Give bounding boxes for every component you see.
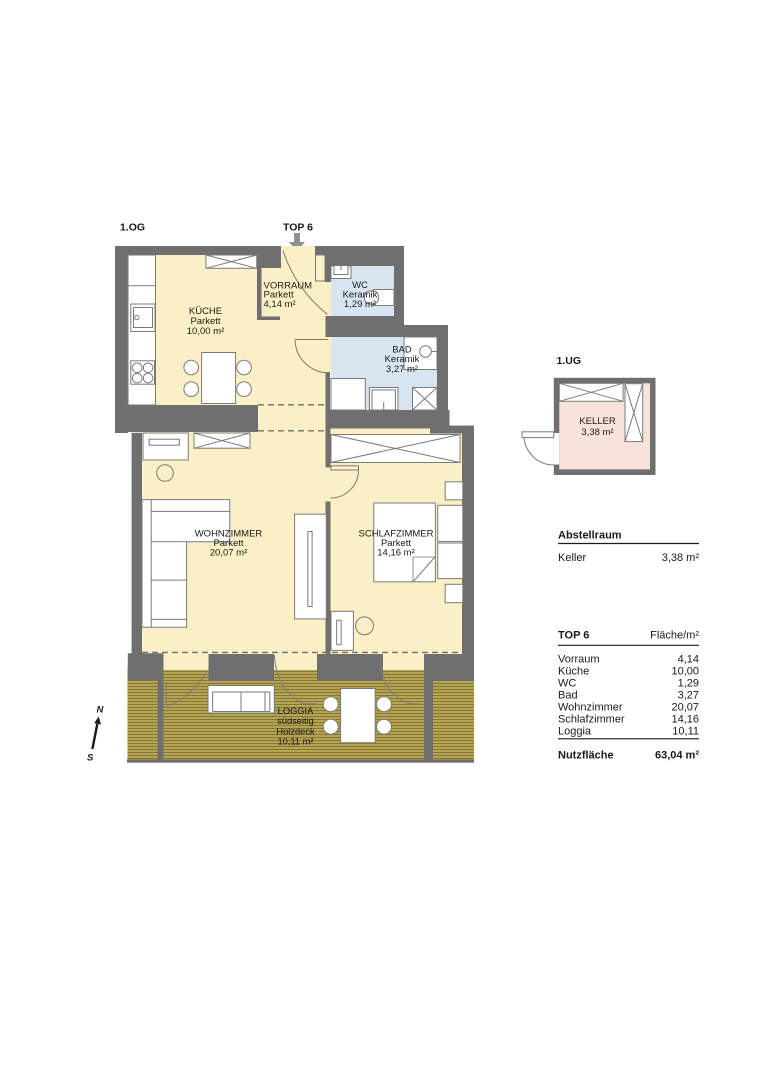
svg-text:Keller: Keller <box>558 552 586 564</box>
svg-text:Wohnzimmer: Wohnzimmer <box>558 702 623 714</box>
svg-text:3,27 m²: 3,27 m² <box>386 364 418 375</box>
svg-text:N: N <box>97 705 105 716</box>
svg-text:Holzdeck: Holzdeck <box>276 726 315 736</box>
svg-text:14,16: 14,16 <box>671 714 699 726</box>
svg-text:KELLER: KELLER <box>579 416 616 427</box>
svg-text:WC: WC <box>558 678 576 690</box>
svg-text:1,29 m²: 1,29 m² <box>344 299 376 310</box>
svg-text:TOP 6: TOP 6 <box>558 629 589 641</box>
svg-text:10,11 m²: 10,11 m² <box>278 737 314 747</box>
svg-text:20,07 m²: 20,07 m² <box>210 548 248 559</box>
svg-text:10,00 m²: 10,00 m² <box>187 326 225 337</box>
svg-text:LOGGIA: LOGGIA <box>278 706 314 716</box>
svg-text:10,00: 10,00 <box>671 666 699 678</box>
svg-text:20,07: 20,07 <box>671 702 699 714</box>
svg-text:3,27: 3,27 <box>678 690 699 702</box>
svg-text:Bad: Bad <box>558 690 578 702</box>
svg-text:Loggia: Loggia <box>558 726 592 738</box>
svg-text:3,38 m²: 3,38 m² <box>581 427 613 438</box>
svg-text:TOP 6: TOP 6 <box>283 222 313 234</box>
svg-text:3,38 m²: 3,38 m² <box>662 552 700 564</box>
svg-text:Küche: Küche <box>558 666 589 678</box>
svg-text:Abstellraum: Abstellraum <box>558 530 622 542</box>
svg-text:Schlafzimmer: Schlafzimmer <box>558 714 625 726</box>
svg-text:Nutzfläche: Nutzfläche <box>558 749 614 761</box>
svg-text:1.OG: 1.OG <box>120 222 145 234</box>
svg-text:1.UG: 1.UG <box>557 355 582 367</box>
svg-text:südseitig: südseitig <box>277 716 314 726</box>
svg-text:4,14 m²: 4,14 m² <box>264 299 296 310</box>
svg-text:10,11: 10,11 <box>672 726 699 738</box>
svg-text:Vorraum: Vorraum <box>558 654 600 666</box>
svg-text:4,14: 4,14 <box>678 654 699 666</box>
svg-text:14,16 m²: 14,16 m² <box>377 548 415 559</box>
svg-text:Fläche/m²: Fläche/m² <box>650 629 699 641</box>
svg-text:1,29: 1,29 <box>678 678 699 690</box>
svg-text:63,04 m²: 63,04 m² <box>655 749 699 761</box>
svg-text:S: S <box>87 753 94 764</box>
